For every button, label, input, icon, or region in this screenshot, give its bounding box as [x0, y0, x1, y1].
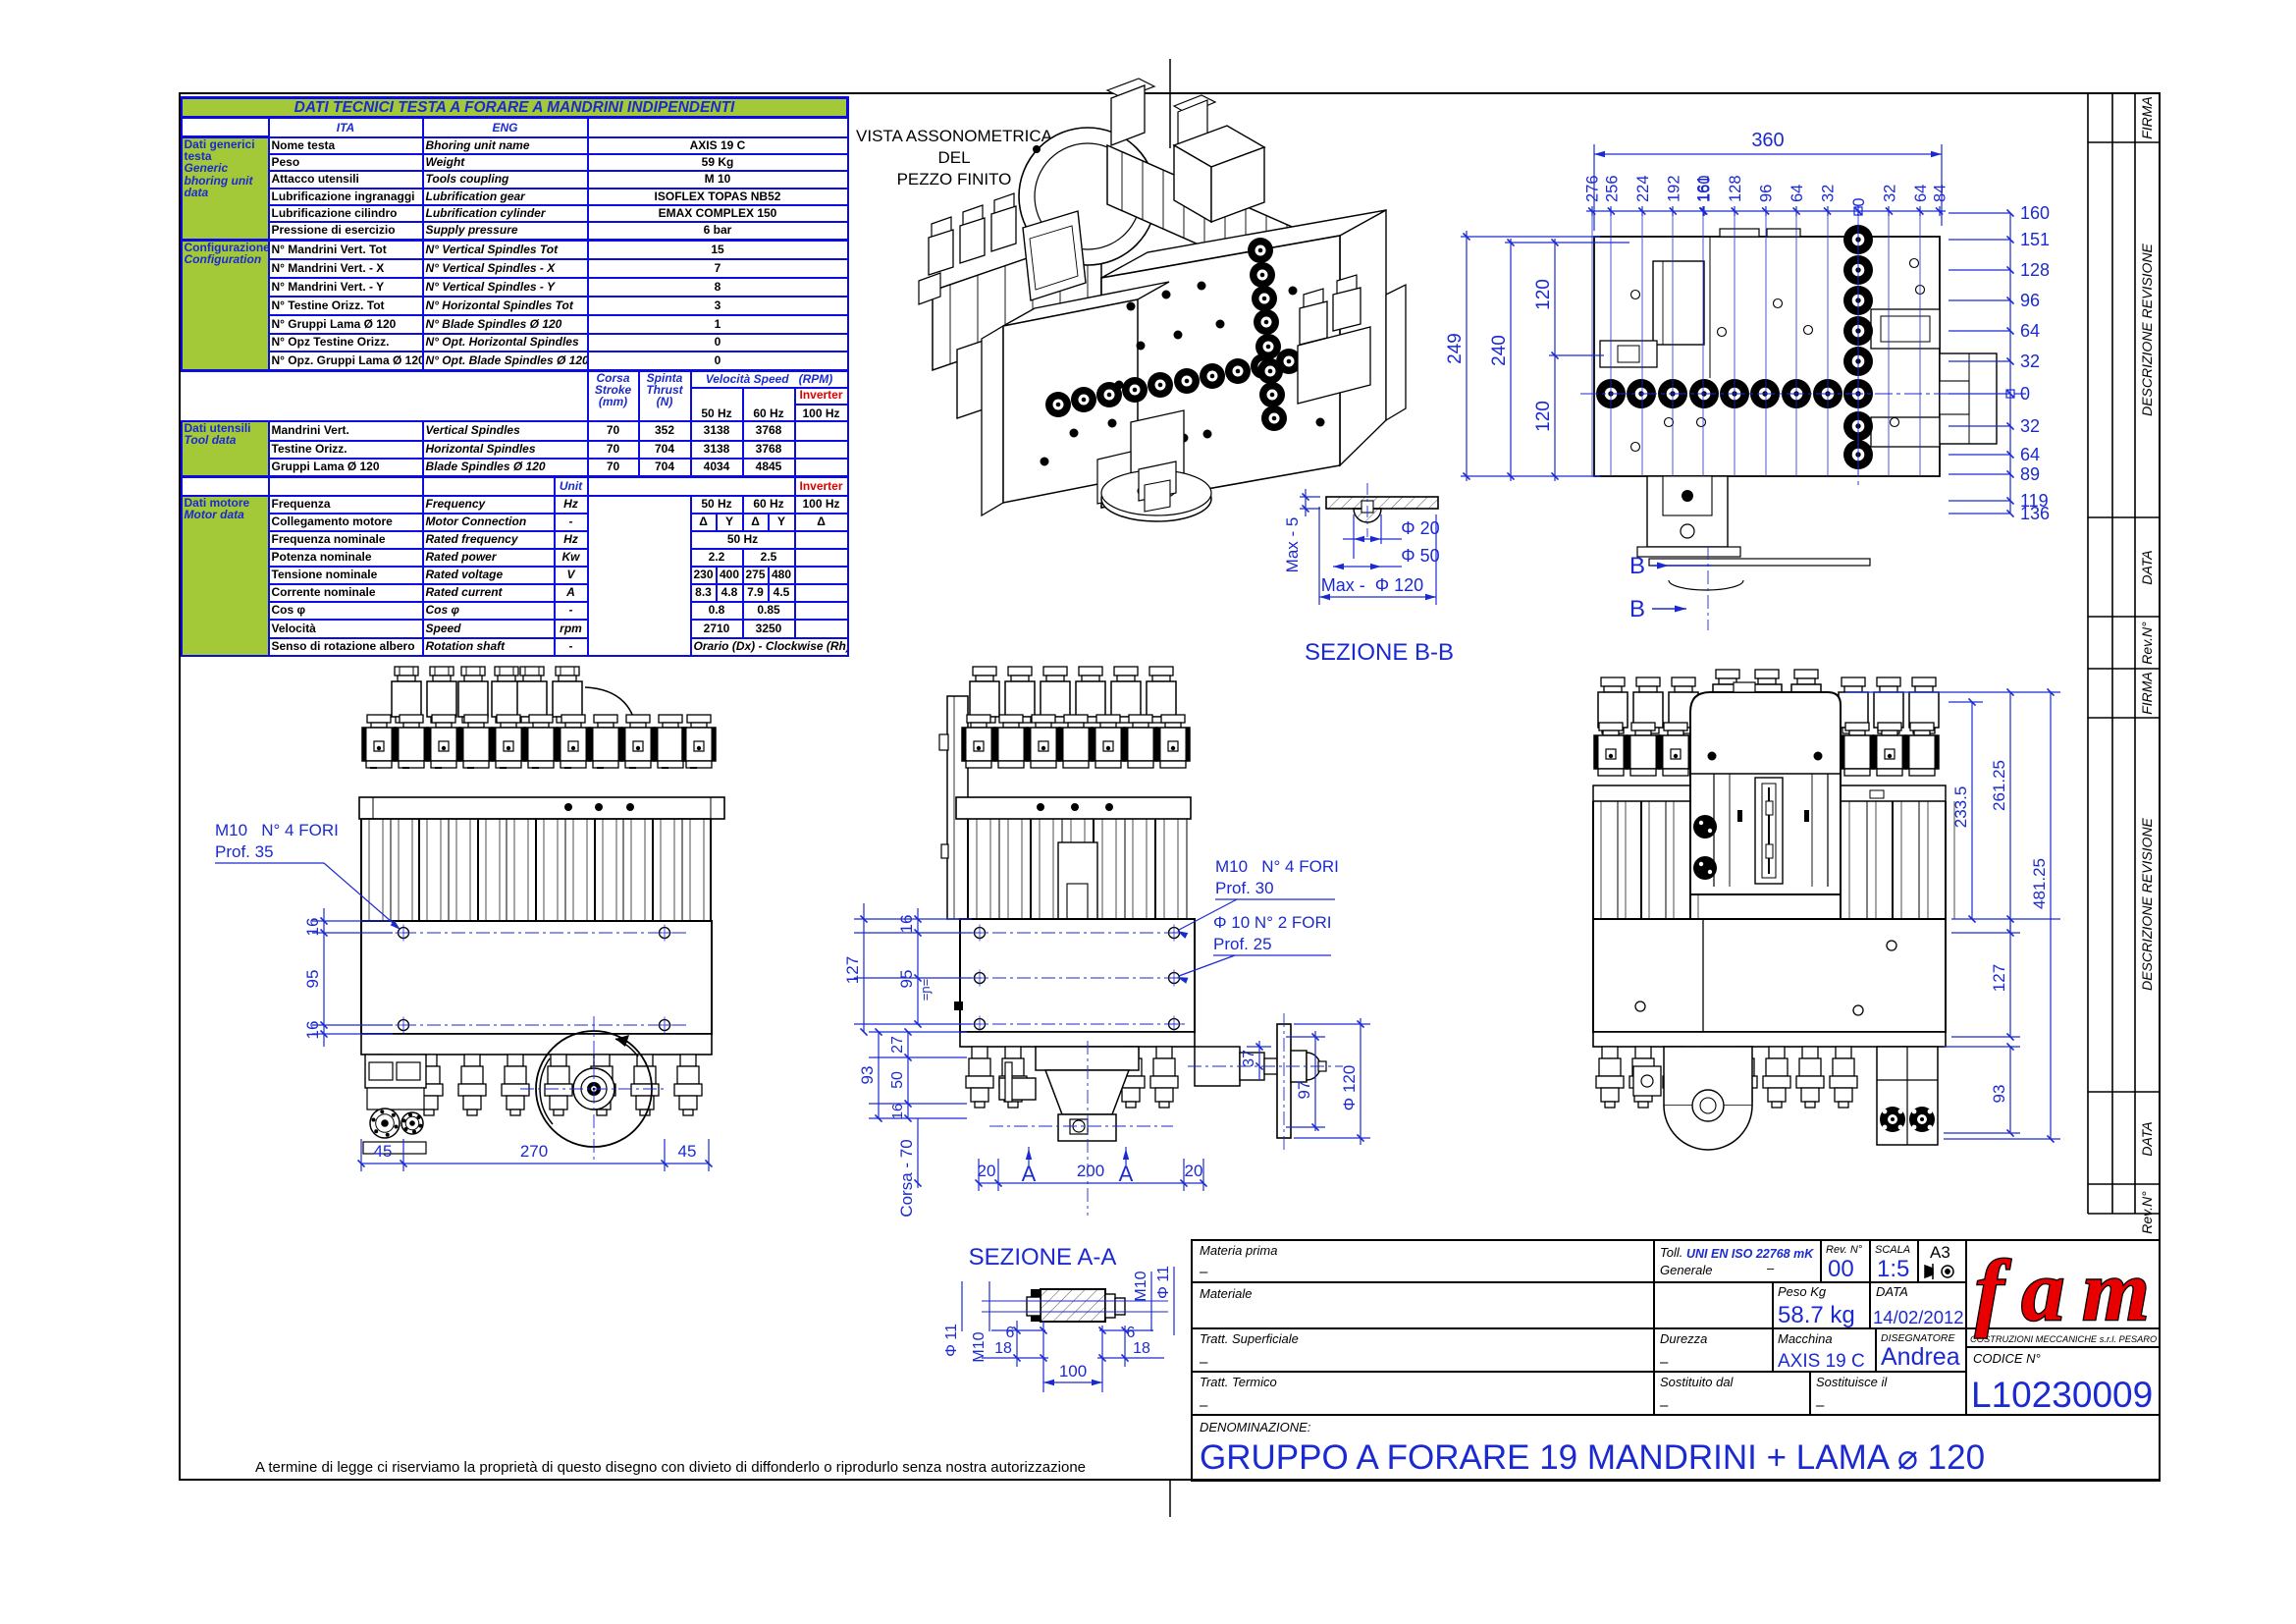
svg-text:360: 360: [1751, 130, 1784, 151]
svg-text:UNI EN ISO 22768 mK: UNI EN ISO 22768 mK: [1686, 1247, 1814, 1261]
svg-text:20: 20: [978, 1162, 996, 1180]
svg-text:Prof. 25: Prof. 25: [1213, 935, 1272, 953]
svg-text:Macchina: Macchina: [1778, 1331, 1833, 1346]
svg-text:261.25: 261.25: [1990, 760, 2008, 811]
svg-text:DESCRIZIONE REVISIONE: DESCRIZIONE REVISIONE: [2139, 817, 2155, 990]
svg-text:SEZIONE A-A: SEZIONE A-A: [969, 1244, 1117, 1271]
svg-text:Prof. 30: Prof. 30: [1215, 879, 1274, 897]
svg-text:Prof. 35: Prof. 35: [215, 842, 274, 861]
svg-text:A3: A3: [1930, 1243, 1950, 1262]
svg-text:224: 224: [1634, 175, 1652, 202]
svg-text:Max - 5: Max - 5: [1283, 517, 1302, 573]
svg-text:20: 20: [1185, 1162, 1203, 1180]
svg-text:–: –: [1659, 1397, 1669, 1414]
svg-text:Φ 50: Φ 50: [1401, 546, 1439, 566]
svg-text:CODICE N°: CODICE N°: [1973, 1351, 2041, 1366]
svg-text:Materia prima: Materia prima: [1200, 1243, 1277, 1258]
svg-text:16: 16: [897, 915, 916, 934]
svg-text:DENOMINAZIONE:: DENOMINAZIONE:: [1200, 1420, 1311, 1435]
svg-text:16: 16: [889, 1104, 906, 1120]
svg-text:128: 128: [1727, 175, 1744, 202]
svg-text:96: 96: [2020, 291, 2040, 310]
svg-text:Φ 11: Φ 11: [943, 1324, 960, 1357]
svg-text:89: 89: [2020, 464, 2040, 484]
svg-text:B: B: [1629, 553, 1645, 579]
svg-text:16: 16: [303, 1021, 322, 1040]
svg-text:96: 96: [1758, 185, 1776, 202]
svg-text:32: 32: [2020, 416, 2040, 436]
svg-text:270: 270: [520, 1142, 548, 1161]
svg-text:PEZZO FINITO: PEZZO FINITO: [897, 170, 1012, 189]
svg-text:Φ 20: Φ 20: [1401, 518, 1439, 538]
svg-text:249: 249: [1445, 333, 1466, 364]
svg-text:37: 37: [1241, 1050, 1257, 1067]
svg-text:50: 50: [889, 1071, 906, 1089]
svg-text:Materiale: Materiale: [1200, 1286, 1252, 1301]
svg-text:SCALA: SCALA: [1875, 1244, 1910, 1256]
svg-text:FIRMA: FIRMA: [2139, 96, 2155, 139]
svg-text:18: 18: [1133, 1340, 1150, 1357]
svg-text:fam: fam: [1975, 1244, 2167, 1339]
svg-text:A termine di legge ci riservia: A termine di legge ci riserviamo la prop…: [255, 1459, 1086, 1476]
svg-text:Sostituito dal: Sostituito dal: [1660, 1375, 1735, 1389]
svg-text:DEL: DEL: [937, 148, 970, 167]
svg-text:DESCRIZIONE REVISIONE: DESCRIZIONE REVISIONE: [2139, 243, 2155, 415]
svg-text:DATA: DATA: [2139, 550, 2155, 584]
svg-text:100: 100: [1059, 1362, 1087, 1380]
svg-text:6: 6: [1006, 1325, 1015, 1341]
svg-text:Andrea: Andrea: [1881, 1343, 1960, 1371]
svg-text:Tratt. Termico: Tratt. Termico: [1200, 1375, 1277, 1389]
svg-text:128: 128: [2020, 260, 2050, 280]
svg-text:64: 64: [1912, 185, 1930, 202]
svg-text:Toll.: Toll.: [1660, 1245, 1682, 1260]
svg-text:93: 93: [1990, 1085, 2008, 1104]
svg-text:–: –: [1766, 1261, 1775, 1275]
svg-text:200: 200: [1077, 1162, 1104, 1180]
svg-text:481.25: 481.25: [2030, 858, 2049, 909]
svg-text:0: 0: [1850, 197, 1868, 206]
svg-text:120: 120: [1533, 279, 1554, 310]
svg-text:A: A: [1119, 1162, 1134, 1186]
svg-text:32: 32: [1881, 185, 1898, 202]
svg-text:Rev.N°: Rev.N°: [2139, 622, 2155, 665]
svg-text:L10230009: L10230009: [1971, 1375, 2153, 1415]
svg-text:151: 151: [2020, 230, 2050, 249]
svg-text:M10 N° 4 FORI: M10 N° 4 FORI: [1215, 857, 1339, 876]
svg-text:27: 27: [889, 1036, 906, 1054]
svg-text:32: 32: [2020, 352, 2040, 371]
svg-text:–: –: [1199, 1354, 1208, 1371]
svg-text:B: B: [1629, 596, 1645, 623]
svg-text:136: 136: [2020, 504, 2050, 523]
svg-text:192: 192: [1665, 175, 1682, 202]
svg-text:160: 160: [2020, 203, 2050, 223]
svg-text:45: 45: [678, 1142, 697, 1161]
svg-text:64: 64: [2020, 445, 2040, 464]
svg-text:32: 32: [1820, 185, 1838, 202]
svg-text:Tratt. Superficiale: Tratt. Superficiale: [1200, 1331, 1299, 1346]
svg-text:DATA: DATA: [2139, 1121, 2155, 1156]
svg-text:SEZIONE B-B: SEZIONE B-B: [1305, 639, 1454, 666]
svg-text:120: 120: [1533, 401, 1554, 432]
svg-text:GRUPPO A FORARE 19 MANDRINI +: GRUPPO A FORARE 19 MANDRINI + LAMA ⌀ 120: [1200, 1438, 1985, 1477]
svg-text:00: 00: [1828, 1256, 1854, 1282]
svg-text:276: 276: [1584, 175, 1602, 202]
svg-text:160: 160: [1696, 175, 1714, 202]
svg-text:127: 127: [843, 956, 862, 984]
svg-text:=ɲ=: =ɲ=: [918, 979, 933, 1001]
svg-text:64: 64: [1789, 185, 1806, 202]
svg-text:45: 45: [374, 1142, 393, 1161]
svg-text:6: 6: [1127, 1325, 1136, 1341]
svg-text:Generale: Generale: [1660, 1263, 1712, 1277]
svg-text:95: 95: [303, 970, 322, 989]
svg-text:93: 93: [858, 1066, 877, 1085]
svg-text:Sostituisce il: Sostituisce il: [1816, 1375, 1888, 1389]
svg-text:Φ 120: Φ 120: [1340, 1065, 1359, 1111]
svg-text:VISTA ASSONOMETRICA: VISTA ASSONOMETRICA: [856, 127, 1053, 145]
svg-text:240: 240: [1489, 335, 1510, 366]
svg-text:Durezza: Durezza: [1660, 1331, 1707, 1346]
svg-text:95: 95: [897, 970, 916, 989]
svg-text:AXIS 19 C: AXIS 19 C: [1778, 1351, 1865, 1372]
svg-text:97: 97: [1295, 1081, 1313, 1100]
svg-text:1:5: 1:5: [1877, 1256, 1909, 1282]
svg-text:–: –: [1659, 1354, 1669, 1371]
svg-text:256: 256: [1603, 175, 1621, 202]
svg-text:0: 0: [2020, 384, 2030, 404]
svg-text:–: –: [1199, 1264, 1208, 1280]
svg-text:64: 64: [2020, 321, 2040, 341]
svg-text:Φ 11: Φ 11: [1155, 1266, 1172, 1299]
svg-text:DATA: DATA: [1876, 1284, 1908, 1299]
svg-text:58.7 kg: 58.7 kg: [1778, 1302, 1855, 1328]
svg-text:–: –: [1815, 1397, 1825, 1414]
svg-text:Rev. N°: Rev. N°: [1826, 1244, 1863, 1256]
svg-text:14/02/2012: 14/02/2012: [1873, 1307, 1964, 1327]
svg-text:Corsa - 70: Corsa - 70: [897, 1139, 916, 1217]
svg-text:Φ 10 N° 2 FORI: Φ 10 N° 2 FORI: [1213, 913, 1332, 932]
svg-text:84: 84: [1932, 185, 1949, 202]
svg-text:16: 16: [303, 918, 322, 937]
svg-text:M10: M10: [971, 1331, 988, 1362]
svg-text:Max - Φ 120: Max - Φ 120: [1321, 575, 1423, 595]
svg-text:18: 18: [994, 1340, 1012, 1357]
svg-text:A: A: [1022, 1162, 1037, 1186]
svg-text:M10: M10: [1133, 1271, 1149, 1301]
svg-text:233.5: 233.5: [1951, 786, 1970, 829]
svg-text:Rev.N°: Rev.N°: [2139, 1191, 2155, 1234]
svg-text:M10 N° 4 FORI: M10 N° 4 FORI: [215, 821, 339, 839]
svg-text:–: –: [1199, 1397, 1208, 1414]
svg-text:127: 127: [1990, 964, 2008, 992]
svg-text:FIRMA: FIRMA: [2139, 672, 2155, 715]
svg-text:Peso Kg: Peso Kg: [1778, 1284, 1827, 1299]
